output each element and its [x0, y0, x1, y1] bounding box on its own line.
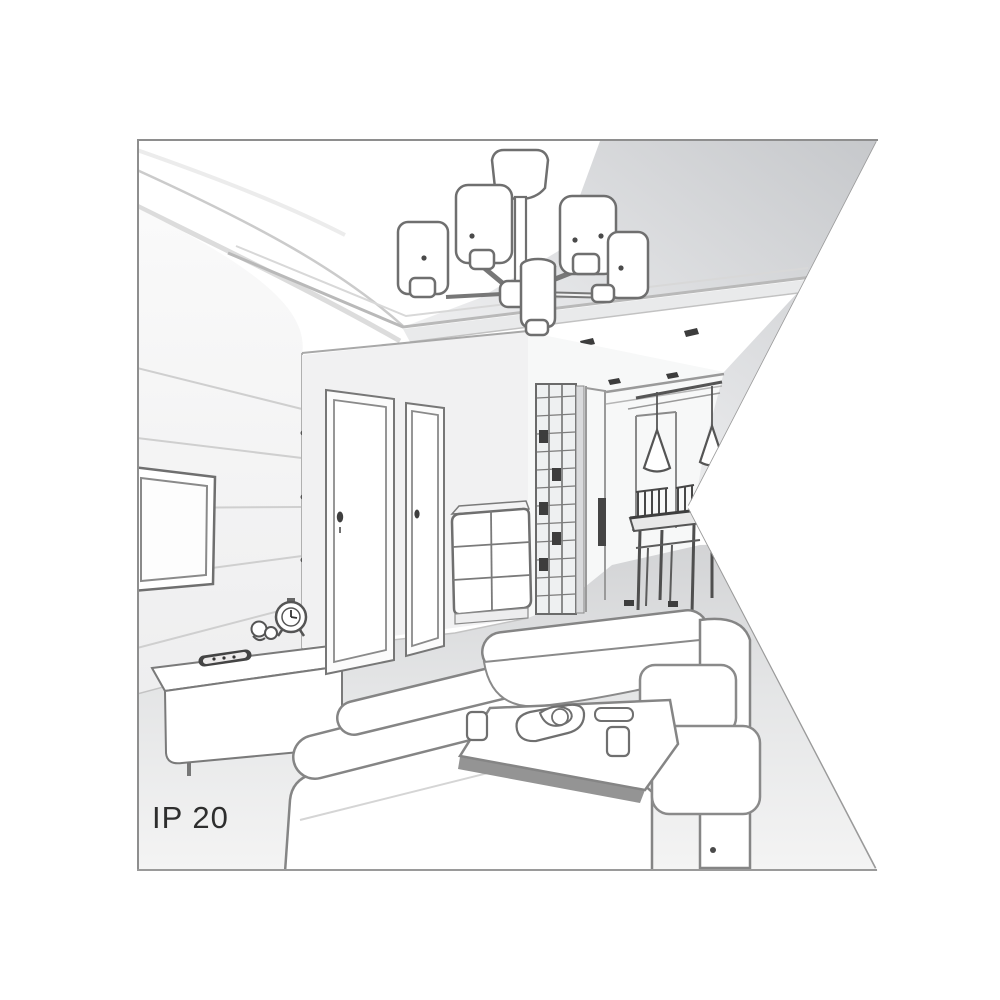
chair-foot: [624, 600, 634, 606]
door-2: [406, 403, 444, 656]
remote-button: [232, 655, 235, 658]
door-handle: [414, 510, 419, 519]
flat-dish: [595, 708, 633, 721]
bulb-holder: [470, 250, 494, 269]
bulb-holder: [410, 278, 435, 297]
remote-button: [222, 656, 225, 659]
sofa-leg: [710, 847, 716, 853]
ip-rating-label: IP 20: [152, 800, 229, 836]
wall-tv: [133, 467, 215, 591]
drawer-chest: [452, 501, 531, 624]
spotlight: [684, 328, 699, 337]
bulb-holder: [592, 285, 614, 302]
wardrobe-front: [536, 384, 576, 614]
tv-screen: [141, 478, 207, 581]
door-1: [326, 390, 394, 674]
chest-divider: [491, 511, 492, 612]
door-edge: [598, 498, 606, 546]
product-illustration: IP 20: [0, 0, 1000, 1000]
door-slab: [334, 400, 386, 662]
cup: [467, 712, 487, 740]
wardrobe: [536, 384, 584, 614]
cup: [607, 727, 629, 756]
lamp-shade: [521, 266, 555, 327]
clock-hand: [291, 617, 297, 618]
wardrobe-side: [576, 386, 584, 613]
chair-foot: [668, 601, 678, 607]
bulb-holder: [526, 320, 548, 335]
remote-button: [212, 657, 215, 660]
door-slab: [412, 411, 438, 646]
room-line-drawing: [0, 0, 1000, 1000]
bulb-holder: [573, 254, 599, 274]
door-handle: [337, 512, 343, 523]
